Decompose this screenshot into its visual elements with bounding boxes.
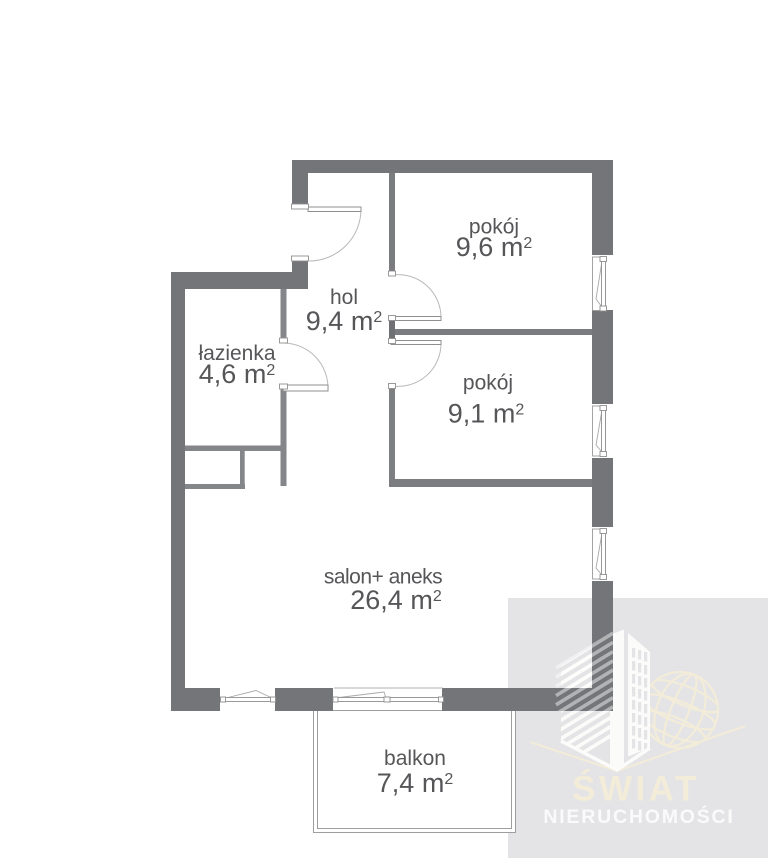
svg-text:26,4 m2: 26,4 m2	[350, 585, 442, 615]
svg-text:NIERUCHOMOŚCI: NIERUCHOMOŚCI	[543, 804, 734, 828]
svg-text:9,4 m2: 9,4 m2	[306, 306, 383, 336]
svg-text:9,1 m2: 9,1 m2	[448, 399, 525, 429]
svg-text:9,6 m2: 9,6 m2	[456, 232, 533, 262]
svg-text:pokój: pokój	[463, 372, 513, 395]
svg-text:ŚWIAT: ŚWIAT	[572, 769, 700, 809]
svg-text:7,4 m2: 7,4 m2	[377, 768, 454, 798]
svg-text:4,6 m2: 4,6 m2	[199, 359, 276, 389]
svg-text:balkon: balkon	[384, 747, 446, 770]
